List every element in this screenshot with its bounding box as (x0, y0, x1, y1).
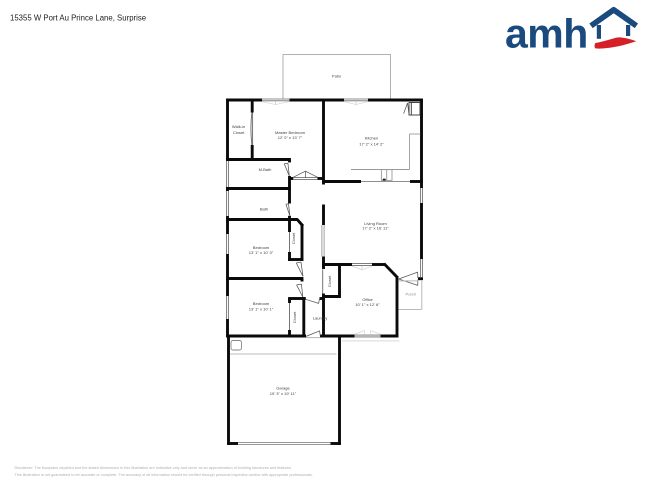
svg-text:10' 1" x 12' 6": 10' 1" x 12' 6" (355, 302, 380, 307)
svg-text:Walk-in: Walk-in (232, 124, 245, 129)
svg-text:Closet: Closet (327, 275, 332, 287)
svg-text:19' 3" x 19' 11": 19' 3" x 19' 11" (270, 391, 297, 396)
svg-text:Patio: Patio (332, 73, 342, 78)
svg-text:Bedroom: Bedroom (253, 301, 270, 306)
svg-text:Closet: Closet (292, 311, 297, 323)
svg-text:M.Bath: M.Bath (259, 167, 272, 172)
svg-text:This illustration is not guara: This illustration is not guaranteed to b… (15, 473, 313, 477)
svg-text:12' 0" x 13' 7": 12' 0" x 13' 7" (278, 135, 303, 140)
svg-text:13' 1" x 10' 3": 13' 1" x 10' 3" (249, 250, 274, 255)
svg-text:Kitchen: Kitchen (365, 136, 379, 141)
svg-text:15355 W Port Au Prince Lane, S: 15355 W Port Au Prince Lane, Surprise (10, 14, 146, 23)
svg-text:Garage: Garage (276, 385, 290, 390)
svg-text:17' 2" x 16' 11": 17' 2" x 16' 11" (362, 226, 389, 231)
svg-text:Closet: Closet (291, 232, 296, 244)
svg-text:Laundry: Laundry (313, 315, 329, 320)
svg-text:Closet: Closet (233, 130, 245, 135)
svg-text:amh: amh (505, 11, 588, 57)
svg-text:Bath: Bath (260, 207, 268, 212)
svg-text:13' 1" x 10' 1": 13' 1" x 10' 1" (249, 307, 274, 312)
svg-text:17' 2" x 14' 2": 17' 2" x 14' 2" (359, 142, 384, 147)
svg-text:Porch: Porch (406, 292, 417, 297)
svg-text:Disclaimer: The floorplans dep: Disclaimer: The floorplans depicted and … (15, 466, 292, 470)
